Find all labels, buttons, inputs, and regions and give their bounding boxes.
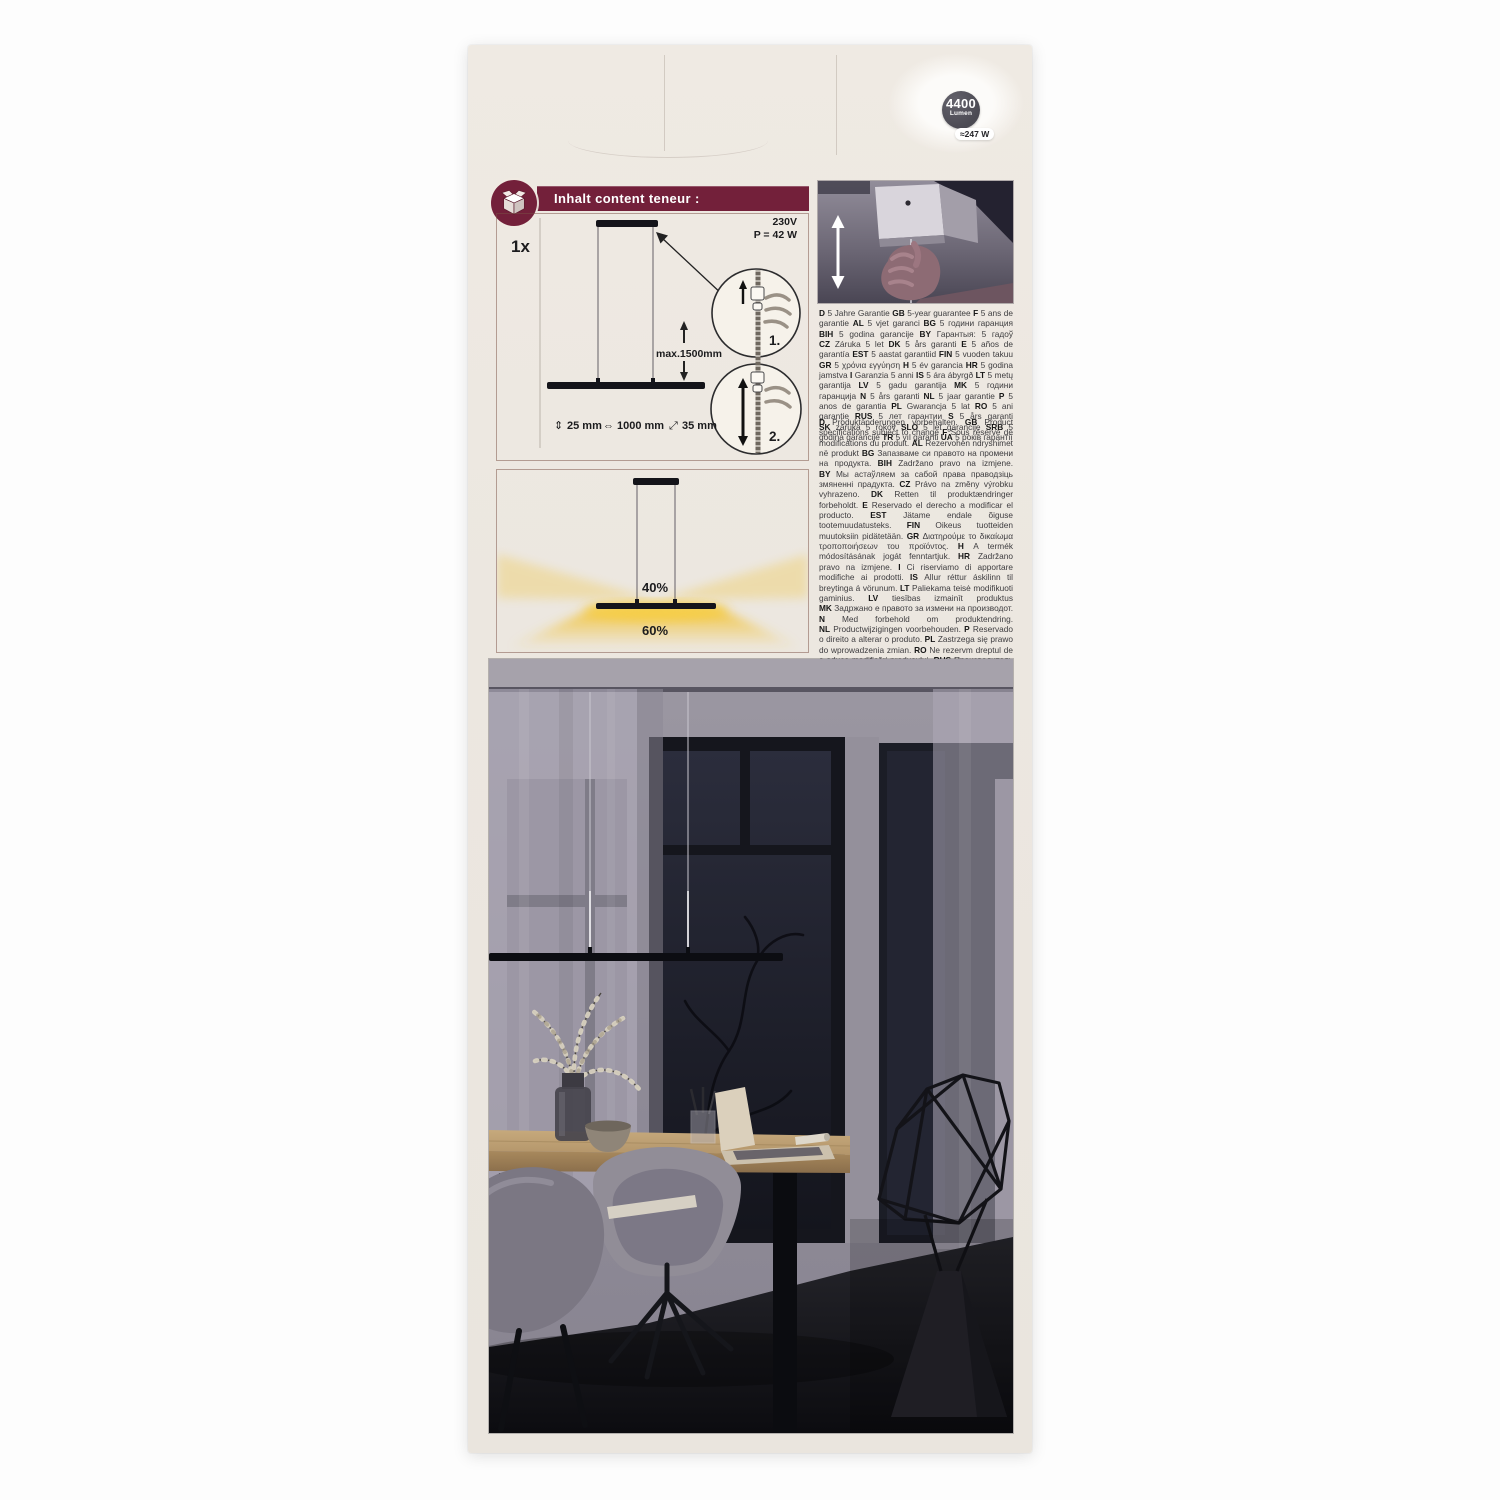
wire-nub (588, 947, 592, 954)
upward-beam-right (657, 554, 808, 600)
wall-pillar (845, 737, 879, 1243)
crease-line (836, 55, 837, 155)
shadow-corner (818, 181, 870, 194)
lifestyle-photo-art (489, 659, 1013, 1433)
wire-nub (673, 599, 677, 603)
contents-header: Inhalt content teneur : (537, 186, 809, 211)
dimensions-diagram-drawing: 1x 230V P = 42 W max.1500mm (497, 214, 808, 460)
crease-line (568, 123, 768, 158)
package-back-panel: 4400 Lumen ≈247 W Inhalt content teneur … (468, 45, 1032, 1453)
canopy-hole (905, 200, 910, 205)
step-2-label: 2. (769, 429, 780, 444)
lamp-bar (547, 382, 705, 389)
wire-nub (635, 599, 639, 603)
light-distribution-diagram: 40% 60% (496, 469, 809, 653)
downward-percentage: 60% (642, 623, 668, 638)
table-leg (773, 1173, 797, 1433)
depth-symbol: ⤢ (669, 420, 678, 432)
ceiling-mount-bar (596, 220, 658, 227)
power-label: P = 42 W (754, 229, 797, 241)
product-photo-canvas: 4400 Lumen ≈247 W Inhalt content teneur … (0, 0, 1500, 1500)
max-drop-label: max.1500mm (656, 348, 722, 360)
lumen-badge: 4400 Lumen (942, 91, 980, 129)
right-vignette (850, 1219, 1013, 1433)
height-adjustment-photo-art (818, 181, 1013, 303)
wire-nub (651, 378, 655, 382)
dimensions-diagram: 1x 230V P = 42 W max.1500mm (496, 213, 809, 461)
height-adjustment-photo (818, 181, 1013, 303)
upward-percentage: 40% (642, 580, 668, 595)
wattage-label: ≈247 W (955, 128, 994, 140)
upward-beam-left (497, 554, 655, 600)
ceiling-canopy (875, 184, 944, 239)
width-value: 1000 mm (617, 420, 664, 432)
wire-nub (596, 378, 600, 382)
lifestyle-photo (489, 659, 1013, 1433)
lumen-value: 4400 (942, 98, 980, 110)
quantity-label: 1x (511, 237, 530, 256)
dimensions-row: ⇕ 25 mm ⇔ 1000 mm ⤢ 35 mm (554, 420, 717, 432)
voltage-label: 230V (772, 216, 797, 228)
width-symbol: ⇔ (603, 420, 614, 432)
lamp-bar (489, 953, 783, 961)
lumen-unit: Lumen (942, 110, 980, 117)
contents-header-label: Inhalt content teneur : (554, 191, 700, 206)
wire-nub (686, 947, 690, 954)
depth-value: 35 mm (682, 420, 717, 432)
detail-pointer-arrow (656, 232, 724, 296)
step-1-label: 1. (769, 333, 780, 348)
lamp-bar (596, 603, 716, 609)
light-distribution-drawing: 40% 60% (497, 470, 808, 652)
height-value: 25 mm (567, 420, 602, 432)
height-symbol: ⇕ (554, 420, 563, 432)
ceiling-mount-bar (633, 478, 679, 485)
ceiling (489, 659, 1013, 689)
